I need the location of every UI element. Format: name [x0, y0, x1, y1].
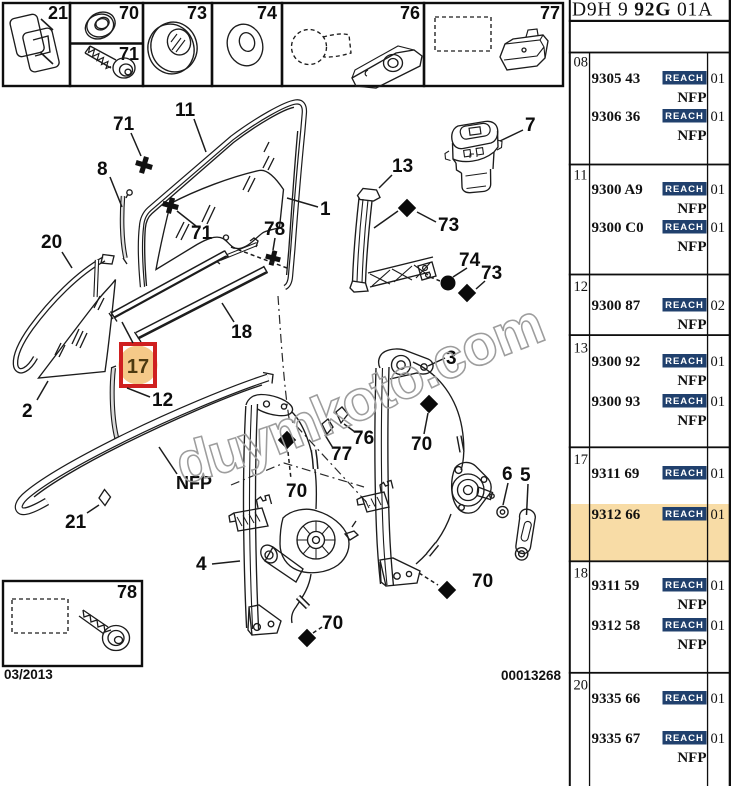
svg-text:01: 01 [711, 691, 726, 707]
svg-text:21: 21 [48, 3, 68, 23]
svg-text:NFP: NFP [677, 90, 706, 106]
svg-text:01: 01 [711, 578, 726, 594]
svg-text:REACH: REACH [665, 356, 704, 367]
svg-text:13: 13 [574, 341, 589, 357]
svg-text:17: 17 [574, 452, 589, 468]
svg-text:77: 77 [331, 444, 352, 465]
svg-text:01: 01 [711, 731, 726, 747]
svg-text:17: 17 [127, 356, 149, 378]
svg-text:70: 70 [411, 434, 432, 455]
svg-text:REACH: REACH [665, 509, 704, 520]
svg-text:REACH: REACH [665, 580, 704, 591]
svg-text:5: 5 [520, 465, 531, 486]
svg-text:08: 08 [574, 55, 589, 71]
svg-text:9300 C0: 9300 C0 [592, 220, 644, 236]
svg-text:20: 20 [41, 232, 62, 253]
svg-text:12: 12 [574, 279, 589, 295]
svg-text:70: 70 [286, 481, 307, 502]
svg-text:13: 13 [392, 156, 413, 177]
svg-text:74: 74 [257, 3, 277, 23]
svg-text:78: 78 [264, 219, 285, 240]
svg-text:9300 93: 9300 93 [592, 394, 641, 410]
svg-text:REACH: REACH [665, 184, 704, 195]
svg-text:73: 73 [438, 215, 459, 236]
svg-text:REACH: REACH [665, 396, 704, 407]
svg-text:REACH: REACH [665, 733, 704, 744]
svg-text:70: 70 [119, 3, 139, 23]
svg-text:9335 67: 9335 67 [592, 731, 641, 747]
svg-text:18: 18 [574, 566, 589, 582]
svg-text:REACH: REACH [665, 300, 704, 311]
svg-text:NFP: NFP [677, 128, 706, 144]
svg-text:01: 01 [711, 466, 726, 482]
svg-text:03/2013: 03/2013 [4, 667, 53, 682]
svg-text:NFP: NFP [677, 239, 706, 255]
svg-text:NFP: NFP [677, 750, 706, 766]
svg-text:02: 02 [711, 298, 726, 314]
svg-text:74: 74 [459, 250, 481, 271]
svg-text:NFP: NFP [677, 413, 706, 429]
svg-text:12: 12 [152, 390, 173, 411]
svg-text:77: 77 [540, 3, 560, 23]
svg-text:REACH: REACH [665, 111, 704, 122]
svg-text:01: 01 [711, 354, 726, 370]
svg-text:9335 66: 9335 66 [592, 691, 641, 707]
svg-text:9311 69: 9311 69 [592, 466, 640, 482]
svg-text:NFP: NFP [677, 201, 706, 217]
svg-text:71: 71 [191, 223, 213, 244]
svg-text:8: 8 [97, 159, 108, 180]
svg-text:REACH: REACH [665, 222, 704, 233]
svg-text:76: 76 [400, 3, 420, 23]
svg-text:2: 2 [22, 401, 33, 422]
svg-text:01: 01 [711, 109, 726, 125]
svg-text:01: 01 [711, 507, 726, 523]
svg-text:6: 6 [502, 464, 513, 485]
svg-text:9305 43: 9305 43 [592, 71, 641, 87]
svg-text:D9H 9 92G 01A: D9H 9 92G 01A [572, 0, 713, 21]
svg-text:01: 01 [711, 182, 726, 198]
svg-text:NFP: NFP [677, 317, 706, 333]
svg-text:9312 58: 9312 58 [592, 618, 641, 634]
svg-text:73: 73 [187, 3, 207, 23]
svg-text:NFP: NFP [677, 373, 706, 389]
svg-text:9300 92: 9300 92 [592, 354, 641, 370]
svg-text:00013268: 00013268 [501, 668, 562, 683]
svg-text:9312 66: 9312 66 [592, 507, 641, 523]
svg-text:1: 1 [320, 199, 331, 220]
svg-text:78: 78 [117, 582, 137, 602]
svg-text:18: 18 [231, 322, 252, 343]
svg-text:REACH: REACH [665, 73, 704, 84]
svg-text:70: 70 [322, 613, 343, 634]
svg-text:01: 01 [711, 618, 726, 634]
svg-text:REACH: REACH [665, 693, 704, 704]
svg-text:71: 71 [113, 114, 135, 135]
svg-text:20: 20 [574, 678, 589, 694]
svg-text:NFP: NFP [677, 597, 706, 613]
svg-text:70: 70 [472, 571, 493, 592]
svg-text:01: 01 [711, 71, 726, 87]
svg-text:9306 36: 9306 36 [592, 109, 641, 125]
svg-text:NFP: NFP [677, 637, 706, 653]
svg-text:4: 4 [196, 554, 207, 575]
svg-text:REACH: REACH [665, 620, 704, 631]
svg-text:7: 7 [525, 115, 536, 136]
svg-text:11: 11 [175, 100, 196, 121]
svg-text:REACH: REACH [665, 468, 704, 479]
svg-text:11: 11 [574, 168, 588, 184]
svg-text:71: 71 [119, 44, 139, 64]
svg-text:01: 01 [711, 220, 726, 236]
svg-text:9311 59: 9311 59 [592, 578, 640, 594]
svg-text:21: 21 [65, 512, 87, 533]
svg-text:9300 A9: 9300 A9 [592, 182, 643, 198]
svg-text:9300 87: 9300 87 [592, 298, 641, 314]
svg-text:01: 01 [711, 394, 726, 410]
